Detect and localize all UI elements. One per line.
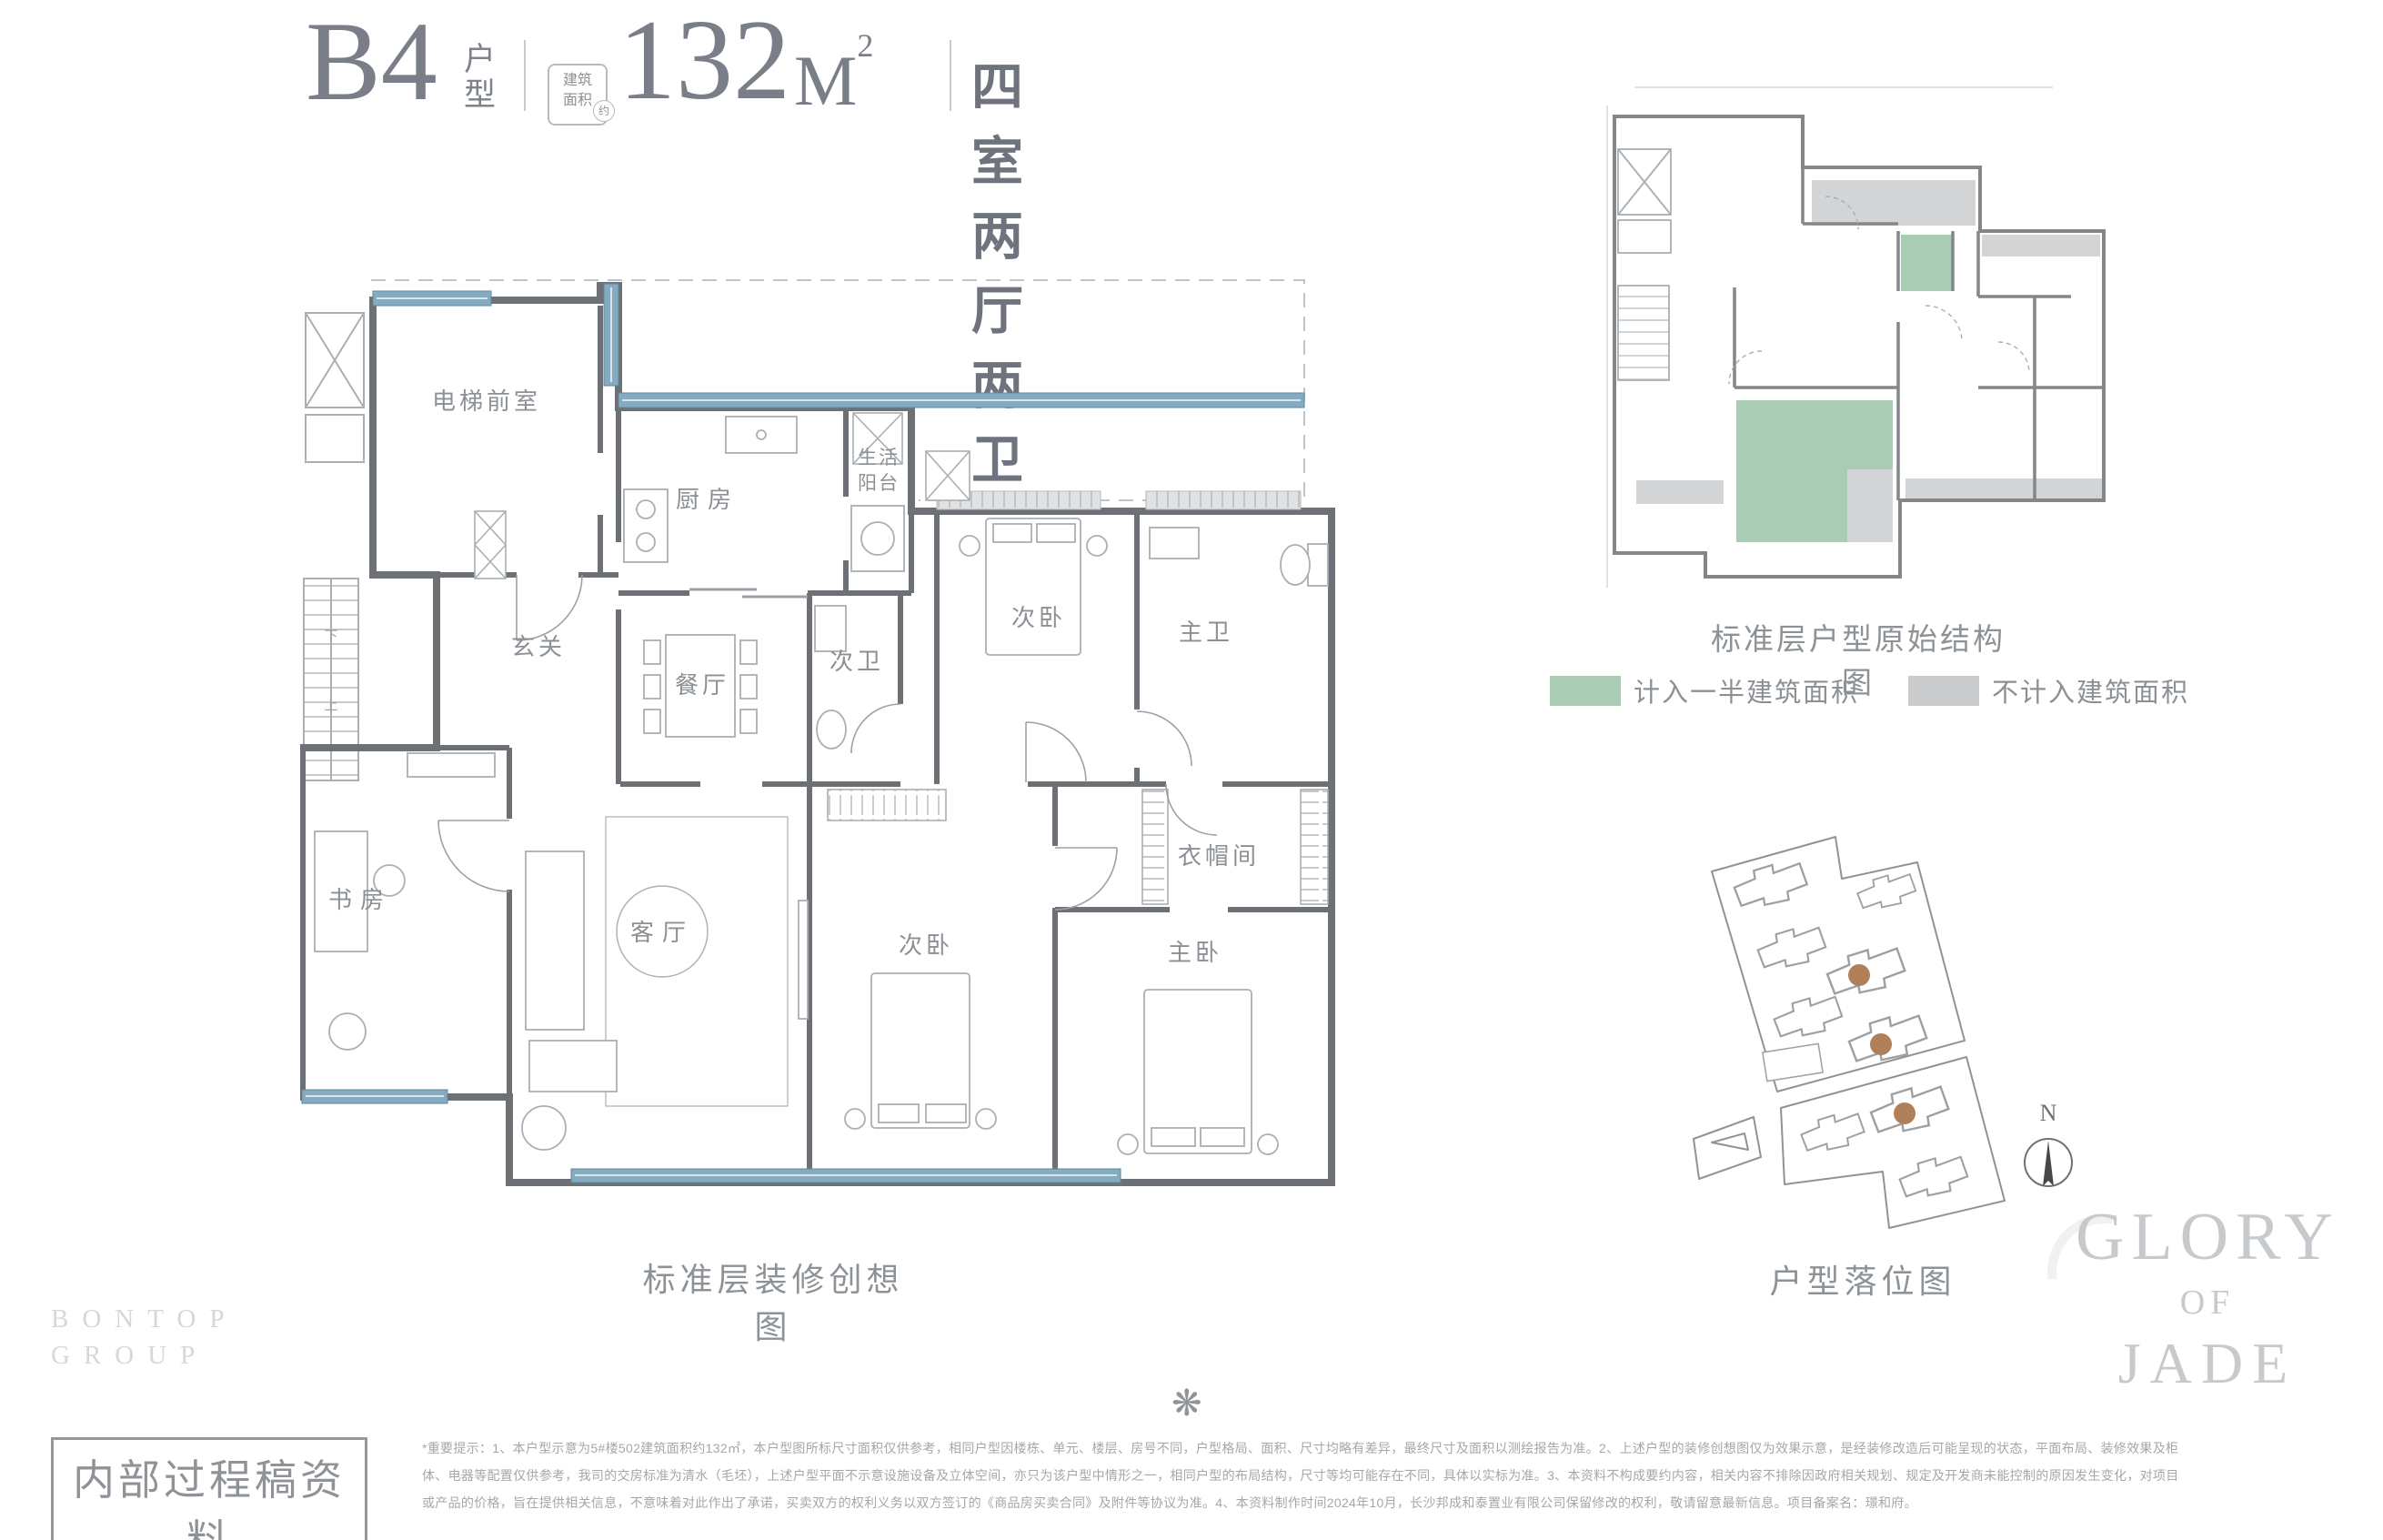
master-bedroom-door — [1055, 848, 1117, 910]
compass: N — [2025, 1100, 2072, 1186]
siteplan-caption: 户型落位图 — [1745, 1255, 1981, 1303]
project-logo: GLORY OF JADE — [2076, 1203, 2339, 1397]
stamp-title: 内部过程稿资料 — [51, 1437, 367, 1540]
room-label-study: 书房 — [328, 886, 392, 913]
disclaimer-line2: 体、电器等配置仅供参考，我司的交房标准为清水（毛坯），上述户型平面不示意设施设备… — [422, 1462, 2123, 1489]
kitchen-slider — [689, 589, 808, 597]
parcel-west — [1694, 1117, 1761, 1179]
room-label-foyer: 玄关 — [511, 633, 566, 660]
master-toilet-tank — [1308, 544, 1328, 586]
bath2-toilet — [817, 710, 846, 749]
floorplan-poster: B4 户型 建筑 面积 约 132 M 2 四室两厅两卫 — [0, 0, 2383, 1540]
stairs-up-label: 上 — [324, 698, 337, 713]
room-label-living: 客厅 — [630, 919, 694, 946]
master-bath-toilet — [1281, 545, 1310, 585]
legend: 计入一半建筑面积 不计入建筑面积 — [1550, 671, 2238, 710]
disclaimer-line3: 或产品的价格，旨在提供相关信息，不意味着对此作出了承诺，买卖双方的权利义务以双方… — [422, 1489, 2123, 1516]
logo-line1: GLORY — [2076, 1203, 2339, 1273]
room-label-master-bedroom: 主卧 — [1168, 939, 1222, 966]
sofa — [526, 851, 584, 1030]
brand-watermark: BONTOP GROUP — [51, 1301, 238, 1374]
area-number: 132 — [618, 4, 790, 118]
gray-patch — [1982, 235, 2100, 257]
compass-north-label: N — [2040, 1100, 2057, 1126]
area-badge-line1: 建筑 — [549, 71, 606, 91]
room-label-cloakroom: 衣帽间 — [1178, 842, 1260, 870]
internal-draft-stamp: 内部过程稿资料 不作为销售道具及承诺使用 — [51, 1437, 367, 1540]
unit-highlight — [1894, 1102, 1915, 1124]
room-label-bedroom2-top: 次卧 — [1011, 604, 1066, 631]
header-divider-2 — [950, 40, 951, 111]
study-plant — [329, 1013, 366, 1050]
study-door — [438, 820, 509, 891]
cloakroom-door — [1166, 784, 1217, 835]
gray-patch — [1812, 180, 1976, 226]
legend-swatch-green — [1550, 676, 1621, 706]
logo-line2: OF — [2076, 1283, 2339, 1323]
brand-watermark-line1: BONTOP — [51, 1301, 238, 1337]
room-label-dining: 餐厅 — [675, 671, 729, 699]
header-divider — [524, 40, 526, 111]
entry-door — [517, 575, 582, 640]
area-badge: 建筑 面积 约 — [548, 64, 608, 126]
main-plan-caption: 标准层装修创想图 — [628, 1253, 919, 1348]
flower-ornament-icon: ❋ — [1171, 1383, 1202, 1424]
cloakroom-wardrobe-left — [1142, 790, 1168, 904]
shaft-box — [306, 415, 364, 462]
room-label-bath2: 次卫 — [830, 648, 884, 675]
cloakroom-wardrobe-right — [1301, 790, 1328, 904]
logo-line3: JADE — [2076, 1330, 2339, 1397]
gray-patch — [1905, 478, 2102, 500]
legend-label-gray: 不计入建筑面积 — [1992, 671, 2189, 710]
room-label-master-bath: 主卫 — [1179, 619, 1233, 646]
master-bath-sink — [1150, 528, 1199, 559]
structural-plan — [1598, 78, 2107, 606]
room-label-kitchen: 厨房 — [676, 486, 739, 513]
structural-service — [1618, 149, 1671, 380]
bath2-sink — [815, 606, 846, 651]
bedroom-top-door — [1026, 722, 1086, 782]
area-value-group: 132 M 2 — [618, 4, 873, 118]
room-label-balcony-1: 生活 — [858, 448, 900, 468]
area-superscript: 2 — [857, 29, 873, 62]
brand-watermark-line2: GROUP — [51, 1337, 238, 1374]
study-shelf — [407, 753, 495, 777]
room-label-balcony-2: 阳台 — [858, 473, 900, 494]
site-building-plain — [1763, 1043, 1823, 1081]
gray-patch — [1847, 469, 1893, 542]
main-floorplan: 下 上 — [300, 273, 1337, 1192]
sofa-chaise — [529, 1041, 617, 1092]
compass-needle — [2043, 1141, 2054, 1186]
structural-patches — [1636, 180, 2102, 542]
green-patch-small — [1901, 235, 1952, 291]
room-label-bedroom2-bottom: 次卧 — [899, 931, 953, 959]
unit-highlight — [1848, 964, 1870, 986]
master-bath-door — [1137, 711, 1191, 766]
disclaimer: *重要提示：1、本户型示意为5#楼502建筑面积约132㎡，本户型图所标尺寸面积… — [422, 1434, 2123, 1516]
tv-cabinet — [799, 901, 808, 1019]
area-badge-circle: 约 — [593, 100, 615, 122]
parcel-north — [1712, 837, 1965, 1092]
unit-suffix: 户型 — [464, 42, 502, 113]
site-buildings — [1732, 861, 1969, 1200]
bath2-door — [851, 704, 900, 753]
disclaimer-line1: *重要提示：1、本户型示意为5#楼502建筑面积约132㎡，本户型图所标尺寸面积… — [422, 1434, 2123, 1462]
bedroom-wardrobe — [828, 790, 946, 820]
stairs-down-label: 下 — [324, 629, 337, 644]
unit-highlight — [1870, 1033, 1892, 1055]
legend-label-green: 计入一半建筑面积 — [1634, 671, 1859, 710]
area-unit: M — [794, 45, 857, 116]
gray-patch — [1636, 480, 1724, 504]
entry-closet — [475, 511, 506, 579]
room-label-elevator-lobby: 电梯前室 — [432, 388, 541, 415]
legend-swatch-gray — [1908, 676, 1979, 706]
site-plan: N — [1675, 824, 2112, 1279]
unit-code: B4 — [306, 5, 437, 118]
living-plant — [522, 1106, 566, 1150]
